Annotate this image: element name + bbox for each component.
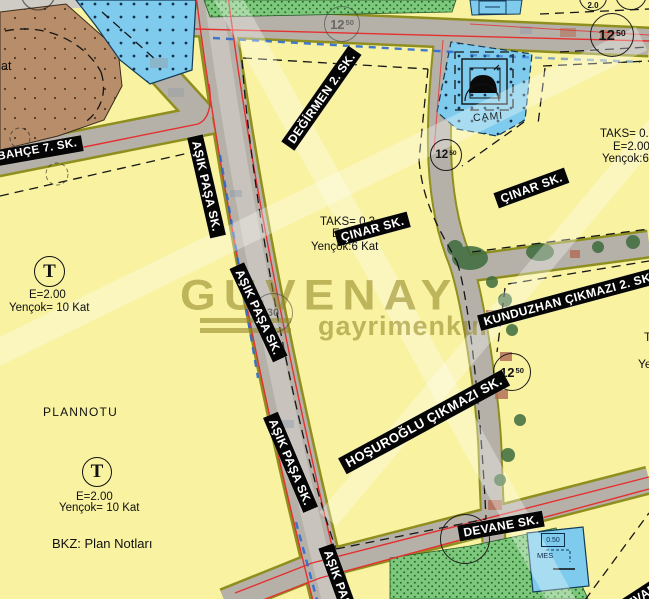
zone-note-e: E=2.00 — [29, 289, 66, 301]
mescit-value-box: 0.50 — [541, 533, 565, 547]
zone-note-yencok: Yençok:6 — [602, 153, 649, 165]
zone-note-yencok: Yençok= 10 Kat — [59, 502, 139, 514]
t-zone-symbol: T — [34, 256, 65, 287]
plan-note-title: PLANNOTU — [43, 405, 118, 419]
zone-note-e: E=2.00 — [613, 141, 649, 153]
plan-note-ref: BKZ: Plan Notları — [52, 536, 152, 551]
zoning-map[interactable]: GÜVENAY gayrimenkul 1250 1250 2.0 1250 1… — [0, 0, 649, 599]
zone-note-taks: TAKS= 0. — [600, 128, 649, 140]
t-zone-symbol: T — [82, 457, 112, 487]
mescit-label: MES — [537, 551, 553, 560]
road-number-badge: 1250 — [590, 13, 634, 57]
road-number-badge: 1250 — [430, 139, 462, 171]
edge-text-fragment: at — [1, 59, 11, 73]
zone-note-yencok: Yençok= 10 Kat — [9, 302, 89, 314]
road-number-badge: 1250 — [324, 6, 360, 42]
edge-text-fragment: Ye — [638, 357, 649, 371]
edge-text-fragment: T — [644, 330, 649, 344]
